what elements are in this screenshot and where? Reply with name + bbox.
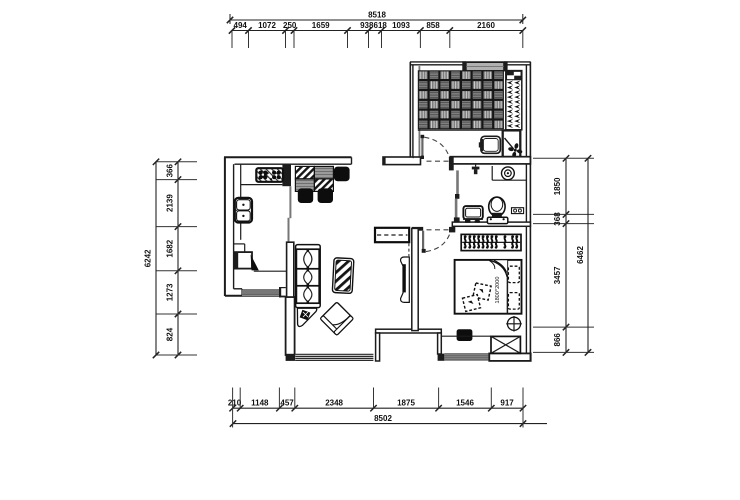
svg-text:824: 824 bbox=[166, 327, 175, 341]
svg-text:2160: 2160 bbox=[477, 21, 495, 30]
svg-text:2139: 2139 bbox=[166, 194, 175, 212]
svg-text:858: 858 bbox=[426, 21, 440, 30]
svg-text:1072: 1072 bbox=[258, 21, 276, 30]
svg-text:938: 938 bbox=[360, 21, 374, 30]
svg-text:1148: 1148 bbox=[251, 399, 269, 408]
svg-text:1800*2000: 1800*2000 bbox=[495, 276, 501, 303]
svg-text:1850: 1850 bbox=[553, 177, 562, 195]
svg-text:3457: 3457 bbox=[553, 266, 562, 284]
svg-text:917: 917 bbox=[500, 399, 514, 408]
svg-text:366: 366 bbox=[166, 163, 175, 177]
svg-text:457: 457 bbox=[280, 399, 294, 408]
svg-text:210: 210 bbox=[228, 399, 242, 408]
svg-text:618: 618 bbox=[374, 21, 388, 30]
svg-text:1875: 1875 bbox=[397, 399, 415, 408]
svg-text:250: 250 bbox=[283, 21, 297, 30]
svg-text:8502: 8502 bbox=[374, 414, 392, 423]
svg-text:6242: 6242 bbox=[144, 249, 153, 267]
svg-text:2348: 2348 bbox=[325, 399, 343, 408]
svg-text:866: 866 bbox=[553, 333, 562, 347]
svg-text:8518: 8518 bbox=[368, 11, 386, 20]
svg-text:1093: 1093 bbox=[392, 21, 410, 30]
svg-text:1273: 1273 bbox=[166, 283, 175, 301]
svg-text:1659: 1659 bbox=[312, 21, 330, 30]
svg-text:494: 494 bbox=[234, 21, 248, 30]
svg-text:1546: 1546 bbox=[456, 399, 474, 408]
svg-text:6462: 6462 bbox=[576, 246, 585, 264]
svg-text:1682: 1682 bbox=[166, 239, 175, 257]
svg-text:368: 368 bbox=[553, 212, 562, 226]
